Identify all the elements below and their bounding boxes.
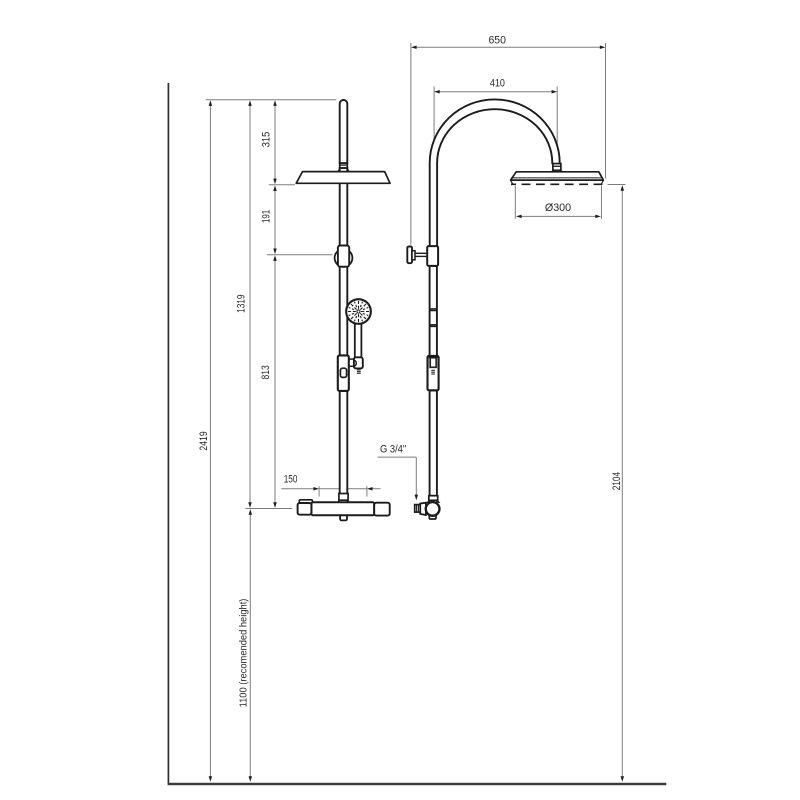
- svg-text:2104: 2104: [611, 472, 623, 490]
- svg-text:650: 650: [488, 35, 506, 47]
- svg-text:1319: 1319: [235, 295, 247, 313]
- svg-text:G 3/4": G 3/4": [380, 443, 406, 455]
- svg-text:315: 315: [260, 132, 272, 148]
- svg-text:2419: 2419: [198, 431, 210, 450]
- svg-text:191: 191: [260, 210, 272, 223]
- svg-text:Ø300: Ø300: [545, 202, 571, 214]
- svg-text:813: 813: [260, 365, 272, 379]
- svg-text:1100 (recomended height): 1100 (recomended height): [239, 599, 250, 708]
- svg-text:410: 410: [490, 77, 505, 89]
- svg-text:150: 150: [284, 474, 298, 486]
